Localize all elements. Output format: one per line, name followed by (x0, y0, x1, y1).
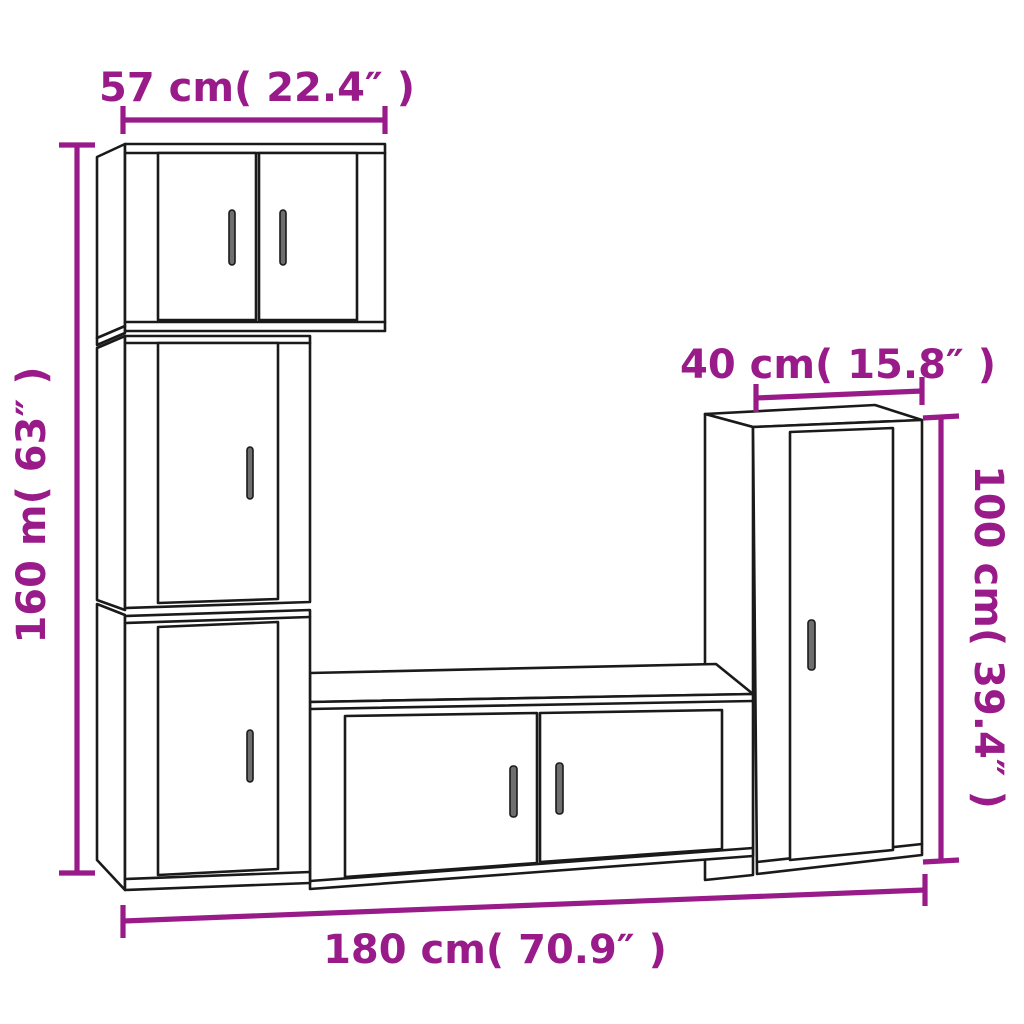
door-panel (259, 153, 357, 320)
cabinet-side-panel (97, 144, 125, 345)
door-panel (345, 713, 537, 877)
cabinet-side-panel (97, 604, 125, 890)
door-panel (540, 710, 722, 862)
cabinet-side-panel (97, 336, 125, 610)
door-handle (229, 210, 235, 265)
door-handle (556, 763, 563, 814)
dimension-left-height (59, 145, 95, 873)
door-handle (280, 210, 286, 265)
dimension-diagram: 57 cm( 22.4″ ) 160 m( 63″ ) 40 cm( 15.8″… (0, 0, 1024, 1024)
door-panel (790, 428, 893, 860)
door-panel (158, 153, 256, 320)
dimension-label-bottom-width: 180 cm( 70.9″ ) (285, 926, 705, 974)
dimension-label-top-width: 57 cm( 22.4″ ) (62, 64, 452, 112)
furniture-line-art (0, 0, 1024, 1024)
dimension-label-right-depth: 40 cm( 15.8″ ) (640, 341, 1024, 389)
door-handle (247, 730, 253, 782)
dimension-right-height (923, 416, 959, 862)
door-handle (510, 766, 517, 817)
door-handle (247, 447, 253, 499)
dimension-label-right-height: 100 cm( 39.4″ ) (964, 427, 1012, 847)
dimension-label-left-height: 160 m( 63″ ) (8, 295, 56, 715)
wall-cabinet-middle (97, 336, 310, 610)
wall-cabinet-top (97, 144, 385, 345)
door-panel (158, 622, 278, 875)
door-panel (158, 343, 278, 603)
door-handle (808, 620, 815, 670)
wall-cabinet-bottom (97, 604, 310, 890)
tv-stand (310, 664, 753, 889)
